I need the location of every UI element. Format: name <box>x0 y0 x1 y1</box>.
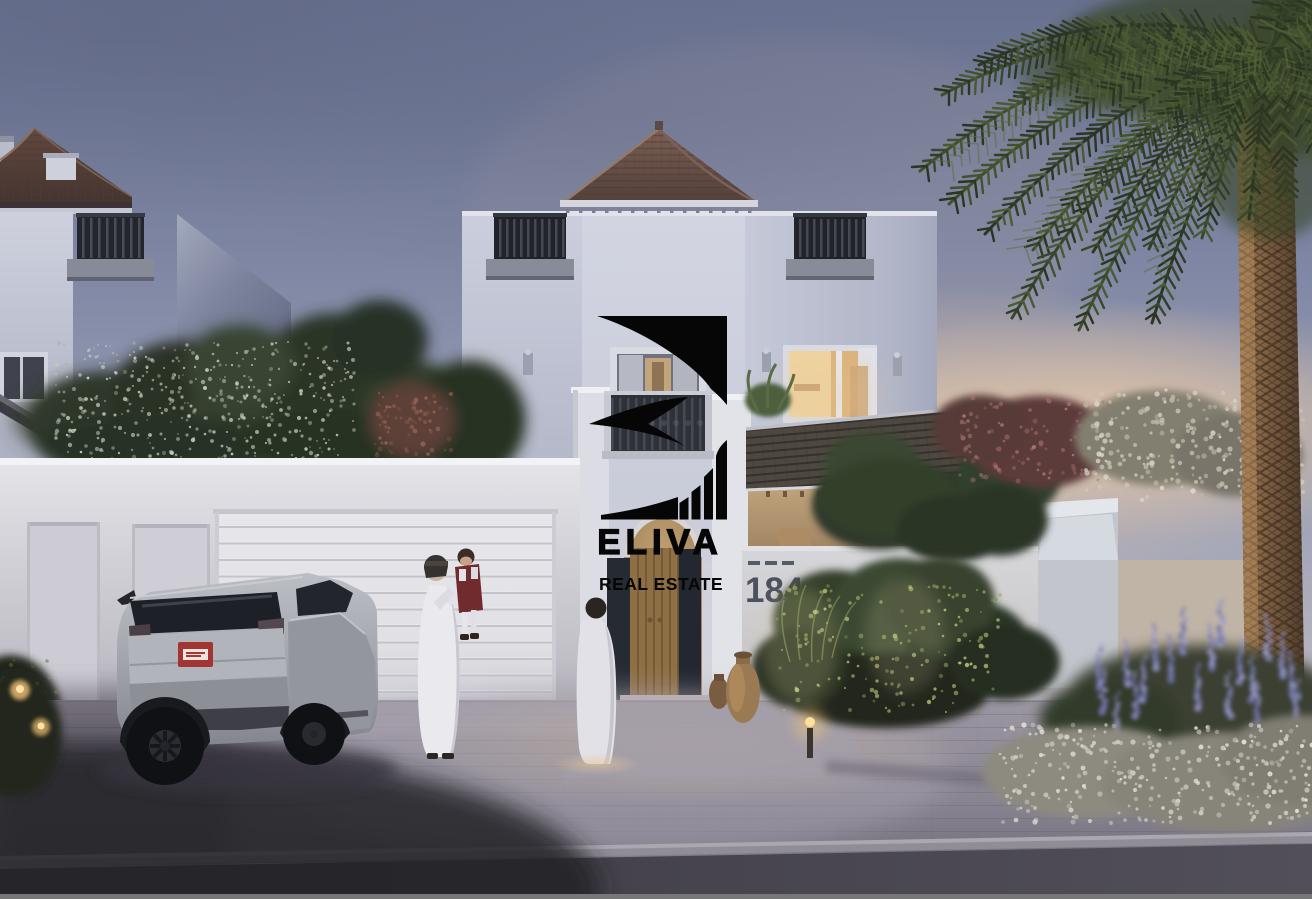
svg-text:ELIVA: ELIVA <box>597 523 722 562</box>
svg-text:REAL ESTATE: REAL ESTATE <box>599 574 723 594</box>
